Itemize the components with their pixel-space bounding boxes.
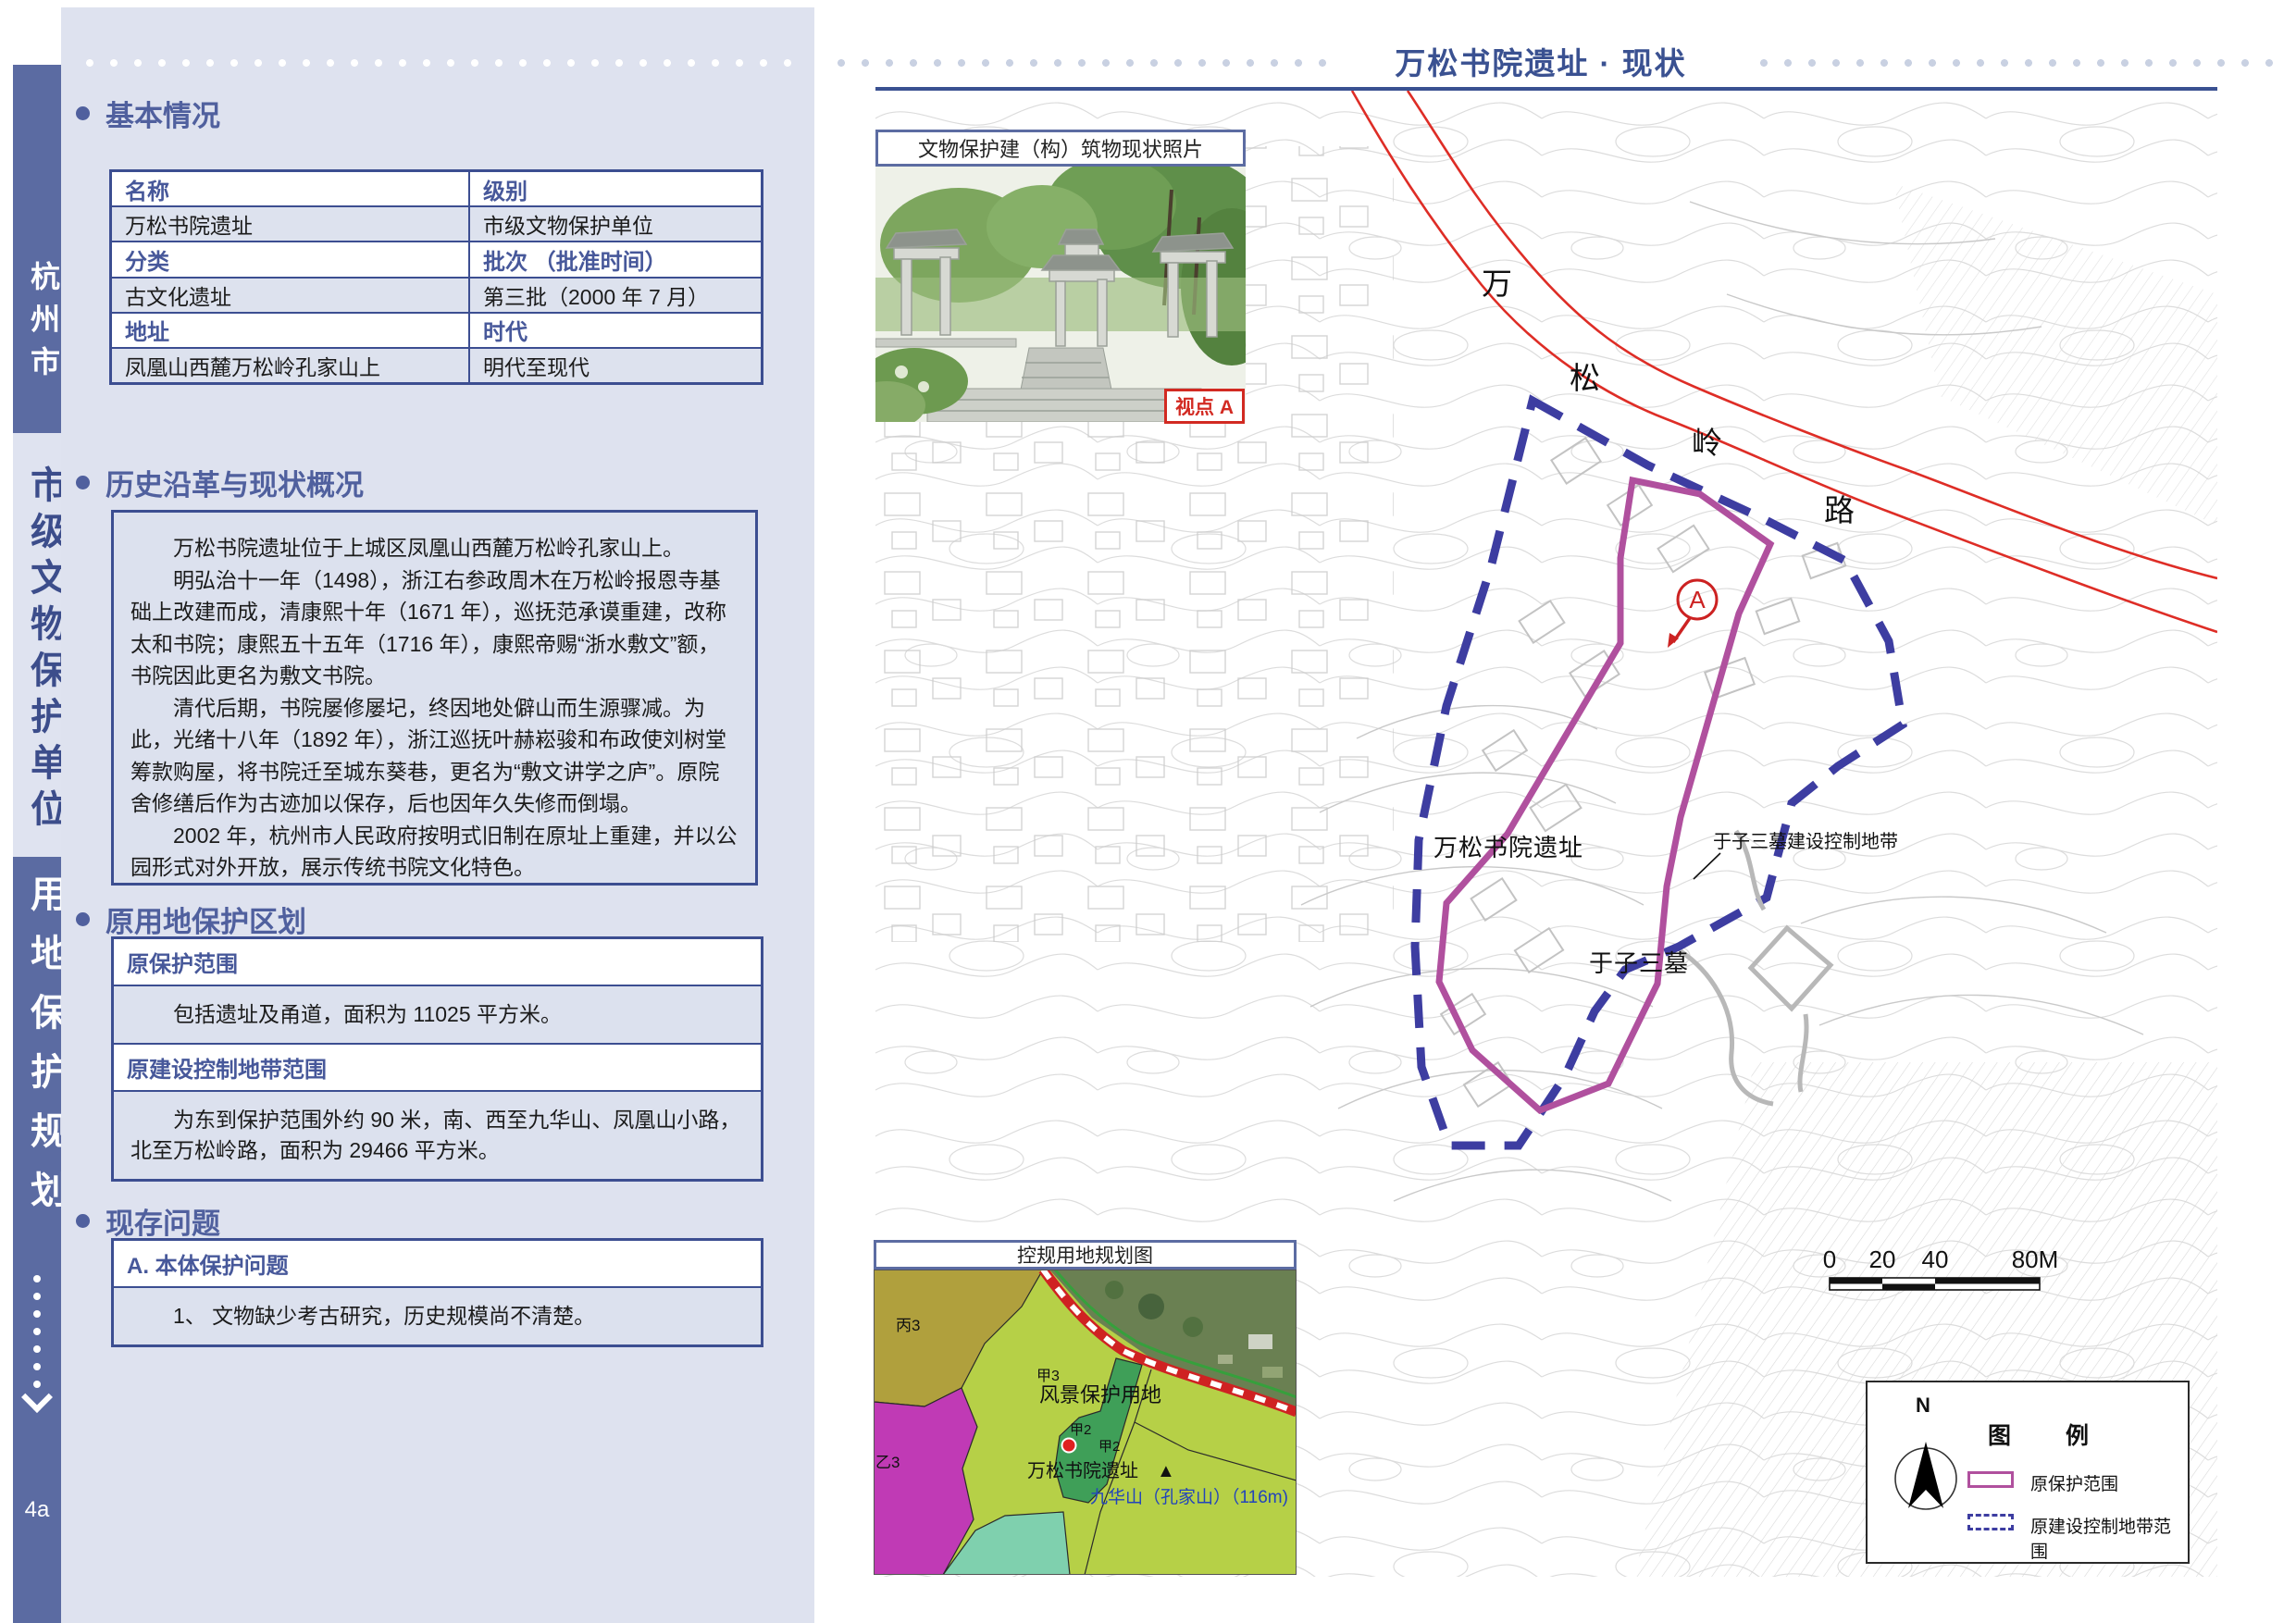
history-paragraph: 万松书院遗址位于上城区凤凰山西麓万松岭孔家山上。	[130, 532, 738, 564]
section-problems-heading: 现存问题	[76, 1200, 220, 1242]
zone-j2-label: 甲2	[1098, 1439, 1120, 1455]
planning-inset-title: 控规用地规划图	[874, 1240, 1297, 1270]
svg-text:路: 路	[1824, 493, 1855, 527]
svg-text:20: 20	[1869, 1245, 1896, 1273]
svg-text:岭: 岭	[1692, 426, 1722, 460]
svg-text:万: 万	[1482, 266, 1512, 301]
history-paragraph: 清代后期，书院屡修屡圮，终因地处僻山而生源骤减。为此，光绪十八年（1892 年）…	[130, 692, 738, 820]
table-value-cell: 万松书院遗址	[112, 207, 468, 241]
legend-protection-swatch	[1967, 1471, 2014, 1488]
bullet-icon	[76, 912, 90, 926]
peak-marker-icon: ▲	[1157, 1461, 1175, 1481]
table-value-cell: 第三批（2000 年 7 月）	[470, 279, 761, 312]
basic-info-table: 名称 级别 万松书院遗址 市级文物保护单位 分类 批次 （批准时间） 古文化遗址…	[109, 169, 763, 385]
map-legend: N 图 例 原保护范围 原建设控制地带范围	[1866, 1381, 2190, 1564]
zoning-label: 原建设控制地带范围	[114, 1045, 761, 1090]
sidebar-city-label: 杭州市	[22, 261, 65, 389]
section-history-heading: 历史沿革与现状概况	[76, 462, 364, 503]
zone-y3-label: 乙3	[875, 1454, 900, 1471]
table-header-cell: 时代	[470, 314, 761, 347]
table-header-cell: 名称	[112, 172, 468, 205]
sheet-title: 万松书院遗址 · 现状	[1342, 39, 1740, 83]
legend-title: 图 例	[1988, 1418, 2113, 1451]
dotted-divider-right	[1752, 57, 2284, 68]
scenic-label: 风景保护用地	[1039, 1383, 1161, 1406]
table-value-cell: 市级文物保护单位	[470, 207, 761, 241]
table-value-cell: 凤凰山西麓万松岭孔家山上	[112, 349, 468, 382]
problem-text: 1、 文物缺少考古研究，历史规模尚不清楚。	[114, 1288, 761, 1344]
zoning-text: 包括遗址及甬道，面积为 11025 平方米。	[114, 986, 761, 1043]
sidebar-dots-icon	[33, 1275, 41, 1388]
legend-protection-label: 原保护范围	[2030, 1470, 2118, 1495]
table-header-cell: 地址	[112, 314, 468, 347]
table-value-cell: 古文化遗址	[112, 279, 468, 312]
svg-text:40: 40	[1922, 1245, 1949, 1273]
site-dot-icon	[1062, 1439, 1076, 1453]
site-label: 万松书院遗址	[1433, 834, 1583, 861]
zoning-label: 原保护范围	[114, 939, 761, 985]
history-paragraph: 明弘治十一年（1498），浙江右参政周木在万松岭报恩寺基础上改建而成，清康熙十年…	[130, 564, 738, 692]
history-text-box: 万松书院遗址位于上城区凤凰山西麓万松岭孔家山上。 明弘治十一年（1498），浙江…	[111, 510, 758, 886]
zone-j3-label: 甲3	[1036, 1369, 1060, 1384]
tomb-label: 于子三墓	[1589, 949, 1689, 977]
problems-box: A. 本体保护问题 1、 文物缺少考古研究，历史规模尚不清楚。	[111, 1238, 763, 1347]
north-arrow-icon	[1884, 1414, 1967, 1534]
viewpoint-a-tag: 视点 A	[1164, 389, 1245, 424]
heritage-photo	[875, 167, 1246, 422]
table-header-cell: 批次 （批准时间）	[470, 242, 761, 276]
section-zoning-heading: 原用地保护区划	[76, 898, 306, 940]
problem-category-label: A. 本体保护问题	[114, 1241, 761, 1286]
section-basic-info-heading: 基本情况	[76, 93, 220, 134]
inset-site-label: 万松书院遗址	[1027, 1460, 1138, 1481]
svg-text:松: 松	[1570, 361, 1600, 395]
zoning-text: 为东到保护范围外约 90 米，南、西至九华山、凤凰山小路，北至万松岭路，面积为 …	[114, 1092, 761, 1179]
svg-text:0: 0	[1823, 1245, 1836, 1273]
bullet-icon	[76, 106, 90, 120]
page-number: 4a	[13, 1497, 61, 1523]
bullet-icon	[76, 476, 90, 489]
table-header-cell: 分类	[112, 242, 468, 276]
dotted-divider-center	[829, 57, 1340, 68]
table-header-cell: 级别	[470, 172, 761, 205]
table-value-cell: 明代至现代	[470, 349, 761, 382]
svg-text:80M: 80M	[2012, 1245, 2059, 1273]
legend-control-swatch	[1967, 1514, 2014, 1530]
planning-map: 丙3 乙3 甲3 风景保护用地 甲2 甲2 万松书院遗址 ▲ 九华山（孔家山）（…	[874, 1270, 1297, 1575]
bullet-icon	[76, 1214, 90, 1228]
legend-control-label: 原建设控制地带范围	[2030, 1513, 2188, 1563]
svg-text:A: A	[1689, 586, 1706, 613]
zone-j2-label: 甲2	[1070, 1422, 1091, 1438]
history-paragraph: 2002 年，杭州市人民政府按明式旧制在原址上重建，并以公园形式对外开放，展示传…	[130, 820, 738, 884]
photo-inset-title: 文物保护建（构）筑物现状照片	[875, 130, 1246, 167]
dotted-divider-left	[78, 57, 800, 68]
zoning-box: 原保护范围 包括遗址及甬道，面积为 11025 平方米。 原建设控制地带范围 为…	[111, 936, 763, 1182]
tomb-zone-label: 于子三墓建设控制地带	[1713, 831, 1898, 852]
zone-c3-label: 丙3	[896, 1317, 920, 1334]
peak-label: 九华山（孔家山）（116m)	[1090, 1487, 1288, 1507]
